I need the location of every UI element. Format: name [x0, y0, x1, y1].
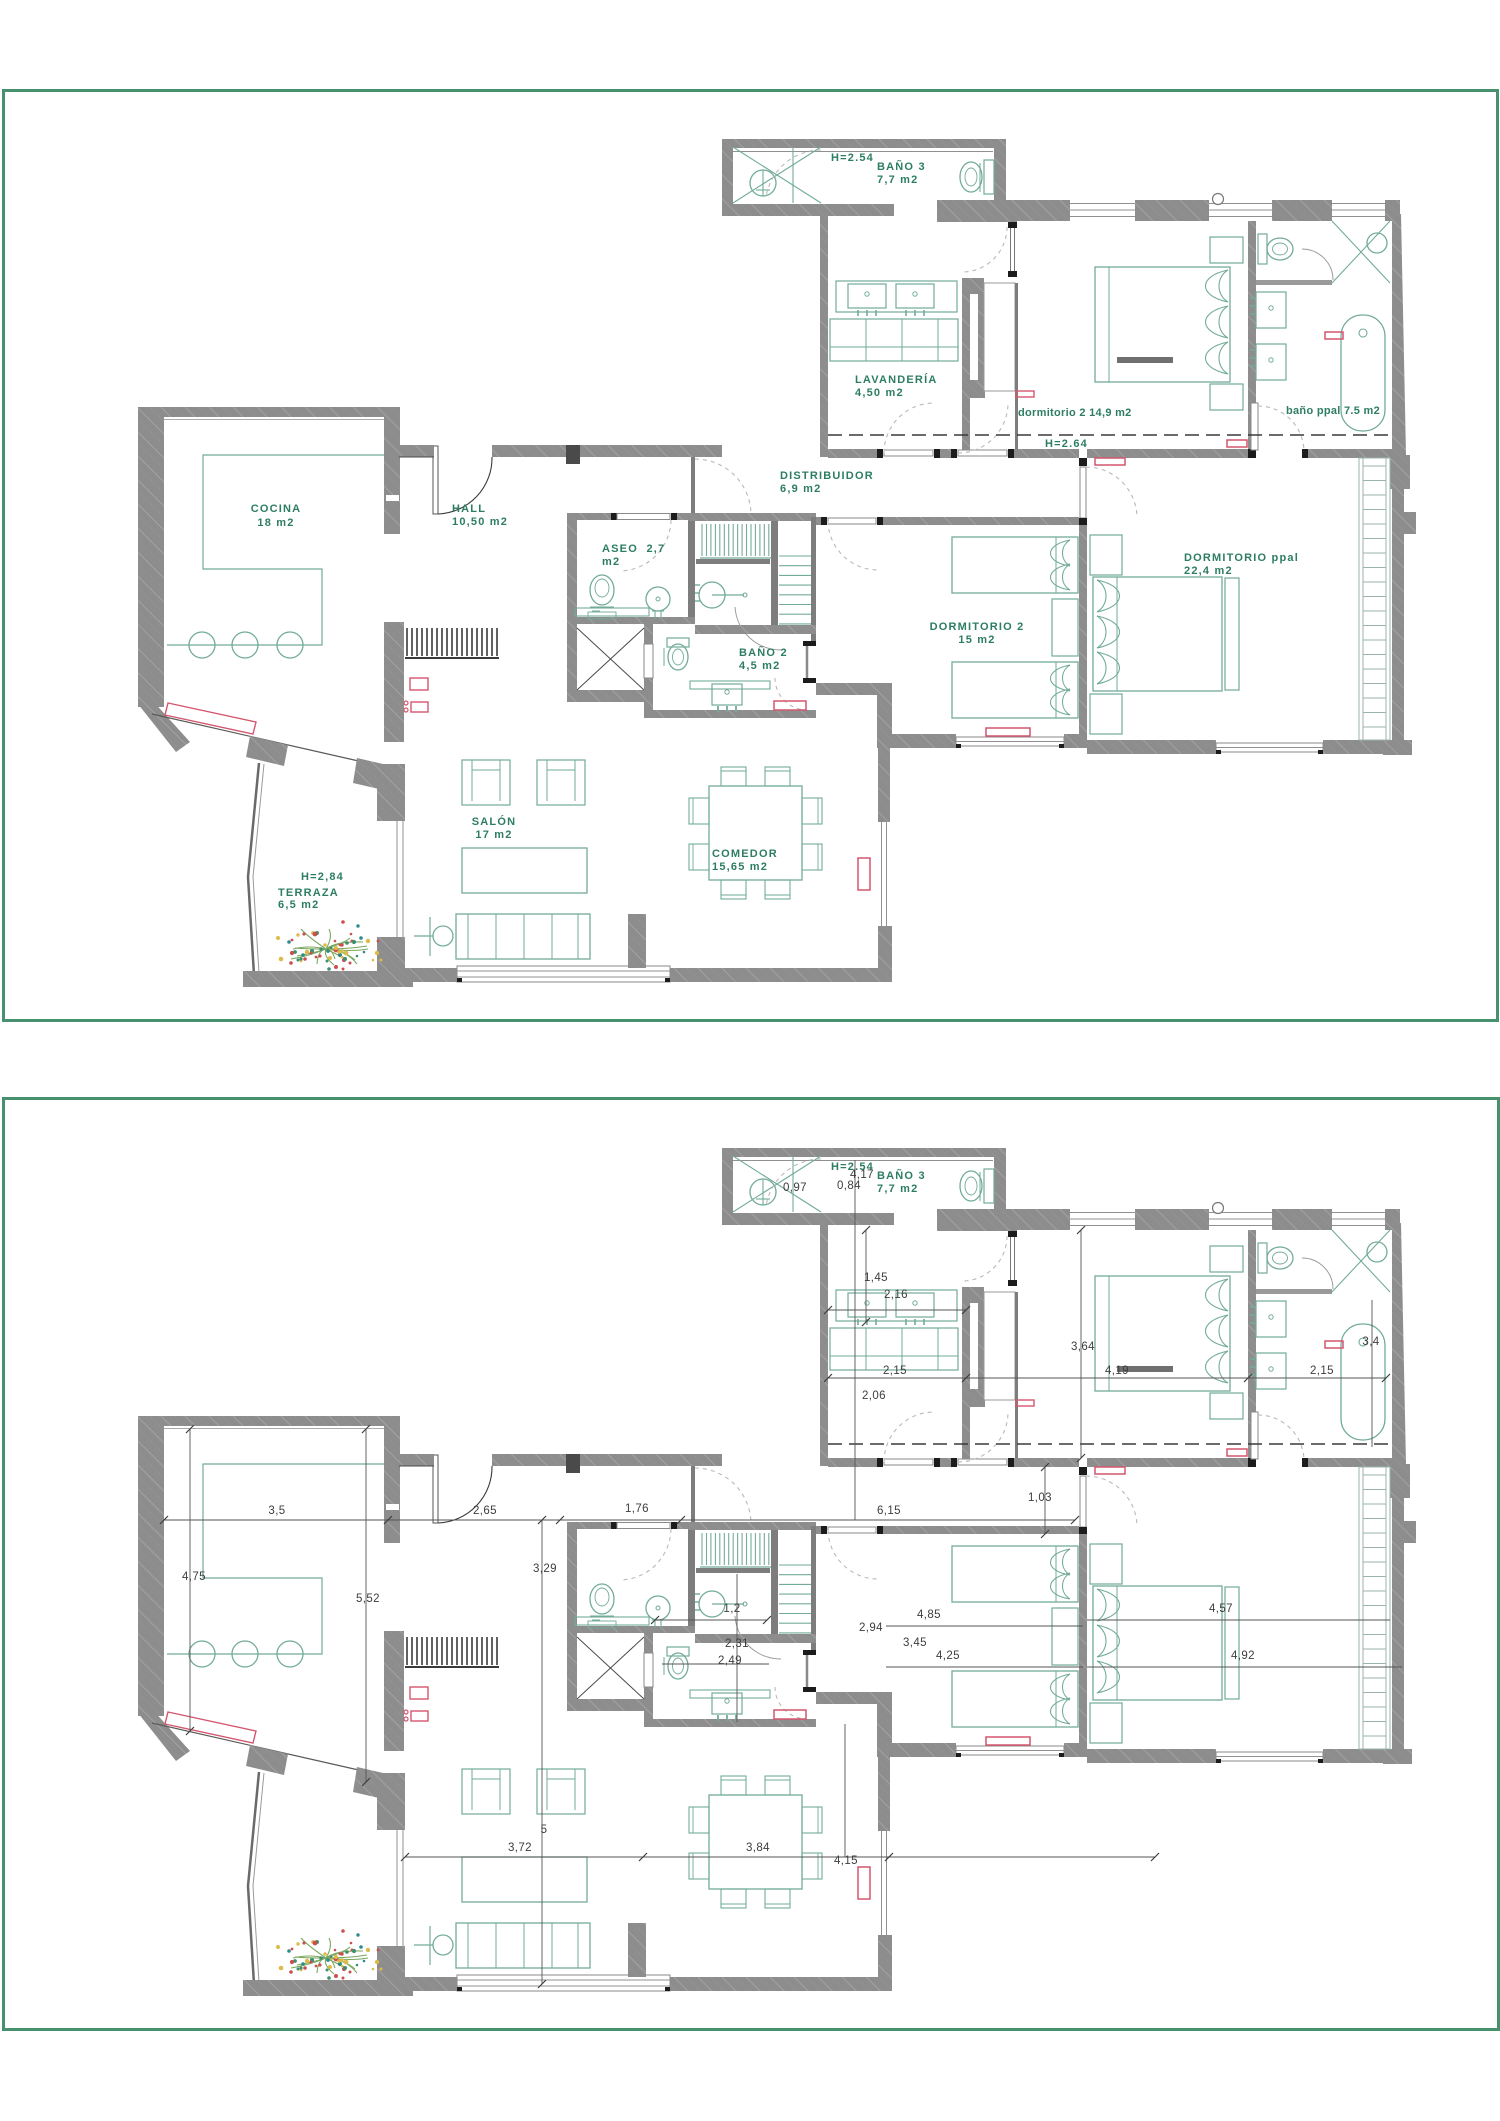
svg-text:10,50 m2: 10,50 m2	[452, 516, 508, 528]
svg-text:DORMITORIO 2: DORMITORIO 2	[930, 621, 1025, 633]
svg-text:6,5 m2: 6,5 m2	[278, 899, 319, 911]
svg-text:m2: m2	[602, 556, 620, 568]
svg-text:5,52: 5,52	[356, 1593, 380, 1605]
svg-text:2,16: 2,16	[884, 1289, 908, 1301]
svg-text:4,25: 4,25	[936, 1650, 960, 1662]
svg-text:0,84: 0,84	[837, 1180, 861, 1192]
svg-text:SALÓN: SALÓN	[472, 815, 517, 828]
svg-text:4,92: 4,92	[1231, 1650, 1255, 1662]
svg-text:3,29: 3,29	[533, 1563, 557, 1575]
svg-text:4,85: 4,85	[917, 1609, 941, 1621]
svg-text:2,49: 2,49	[718, 1655, 742, 1667]
svg-text:18 m2: 18 m2	[257, 517, 294, 529]
svg-text:6,15: 6,15	[877, 1505, 901, 1517]
svg-text:ASEO 2,7: ASEO 2,7	[602, 543, 665, 555]
svg-text:4,19: 4,19	[1105, 1365, 1129, 1377]
svg-text:0,97: 0,97	[783, 1182, 807, 1194]
svg-text:BAÑO 2: BAÑO 2	[739, 646, 788, 659]
svg-text:COMEDOR: COMEDOR	[712, 848, 778, 860]
svg-text:1,2: 1,2	[723, 1603, 740, 1615]
svg-text:15,65 m2: 15,65 m2	[712, 861, 768, 873]
svg-text:HALL: HALL	[452, 503, 486, 515]
svg-text:3,84: 3,84	[746, 1842, 770, 1854]
svg-text:3,5: 3,5	[268, 1505, 285, 1517]
svg-text:LAVANDERÍA: LAVANDERÍA	[855, 373, 937, 386]
svg-text:3,45: 3,45	[903, 1637, 927, 1649]
svg-text:4,5 m2: 4,5 m2	[739, 660, 780, 672]
svg-text:baño ppal 7.5 m2: baño ppal 7.5 m2	[1286, 405, 1380, 417]
svg-text:dormitorio 2 14,9 m2: dormitorio 2 14,9 m2	[1018, 407, 1132, 419]
svg-text:6,9 m2: 6,9 m2	[780, 483, 821, 495]
svg-text:3,64: 3,64	[1071, 1341, 1095, 1353]
svg-text:H=2,84: H=2,84	[301, 871, 344, 883]
svg-text:4,15: 4,15	[834, 1855, 858, 1867]
svg-text:1,76: 1,76	[625, 1503, 649, 1515]
svg-text:2,06: 2,06	[862, 1390, 886, 1402]
svg-text:2,15: 2,15	[1310, 1365, 1334, 1377]
svg-text:H=2.64: H=2.64	[1045, 438, 1088, 450]
svg-text:2,31: 2,31	[725, 1638, 749, 1650]
svg-text:1,45: 1,45	[864, 1272, 888, 1284]
svg-text:15 m2: 15 m2	[958, 634, 995, 646]
svg-text:3,72: 3,72	[508, 1842, 532, 1854]
svg-text:22,4 m2: 22,4 m2	[1184, 565, 1233, 577]
svg-text:2,94: 2,94	[859, 1622, 883, 1634]
svg-text:3,4: 3,4	[1362, 1336, 1379, 1348]
svg-text:1,03: 1,03	[1028, 1492, 1052, 1504]
svg-text:DISTRIBUIDOR: DISTRIBUIDOR	[780, 470, 874, 482]
svg-text:4,75: 4,75	[182, 1571, 206, 1583]
svg-text:DORMITORIO ppal: DORMITORIO ppal	[1184, 552, 1299, 564]
svg-text:COCINA: COCINA	[251, 503, 302, 515]
svg-text:2,65: 2,65	[473, 1505, 497, 1517]
svg-text:17 m2: 17 m2	[475, 829, 512, 841]
svg-text:4,57: 4,57	[1209, 1603, 1233, 1615]
svg-text:5: 5	[541, 1824, 548, 1836]
svg-text:TERRAZA: TERRAZA	[278, 887, 339, 899]
svg-text:4,50 m2: 4,50 m2	[855, 387, 904, 399]
svg-text:2,15: 2,15	[883, 1365, 907, 1377]
